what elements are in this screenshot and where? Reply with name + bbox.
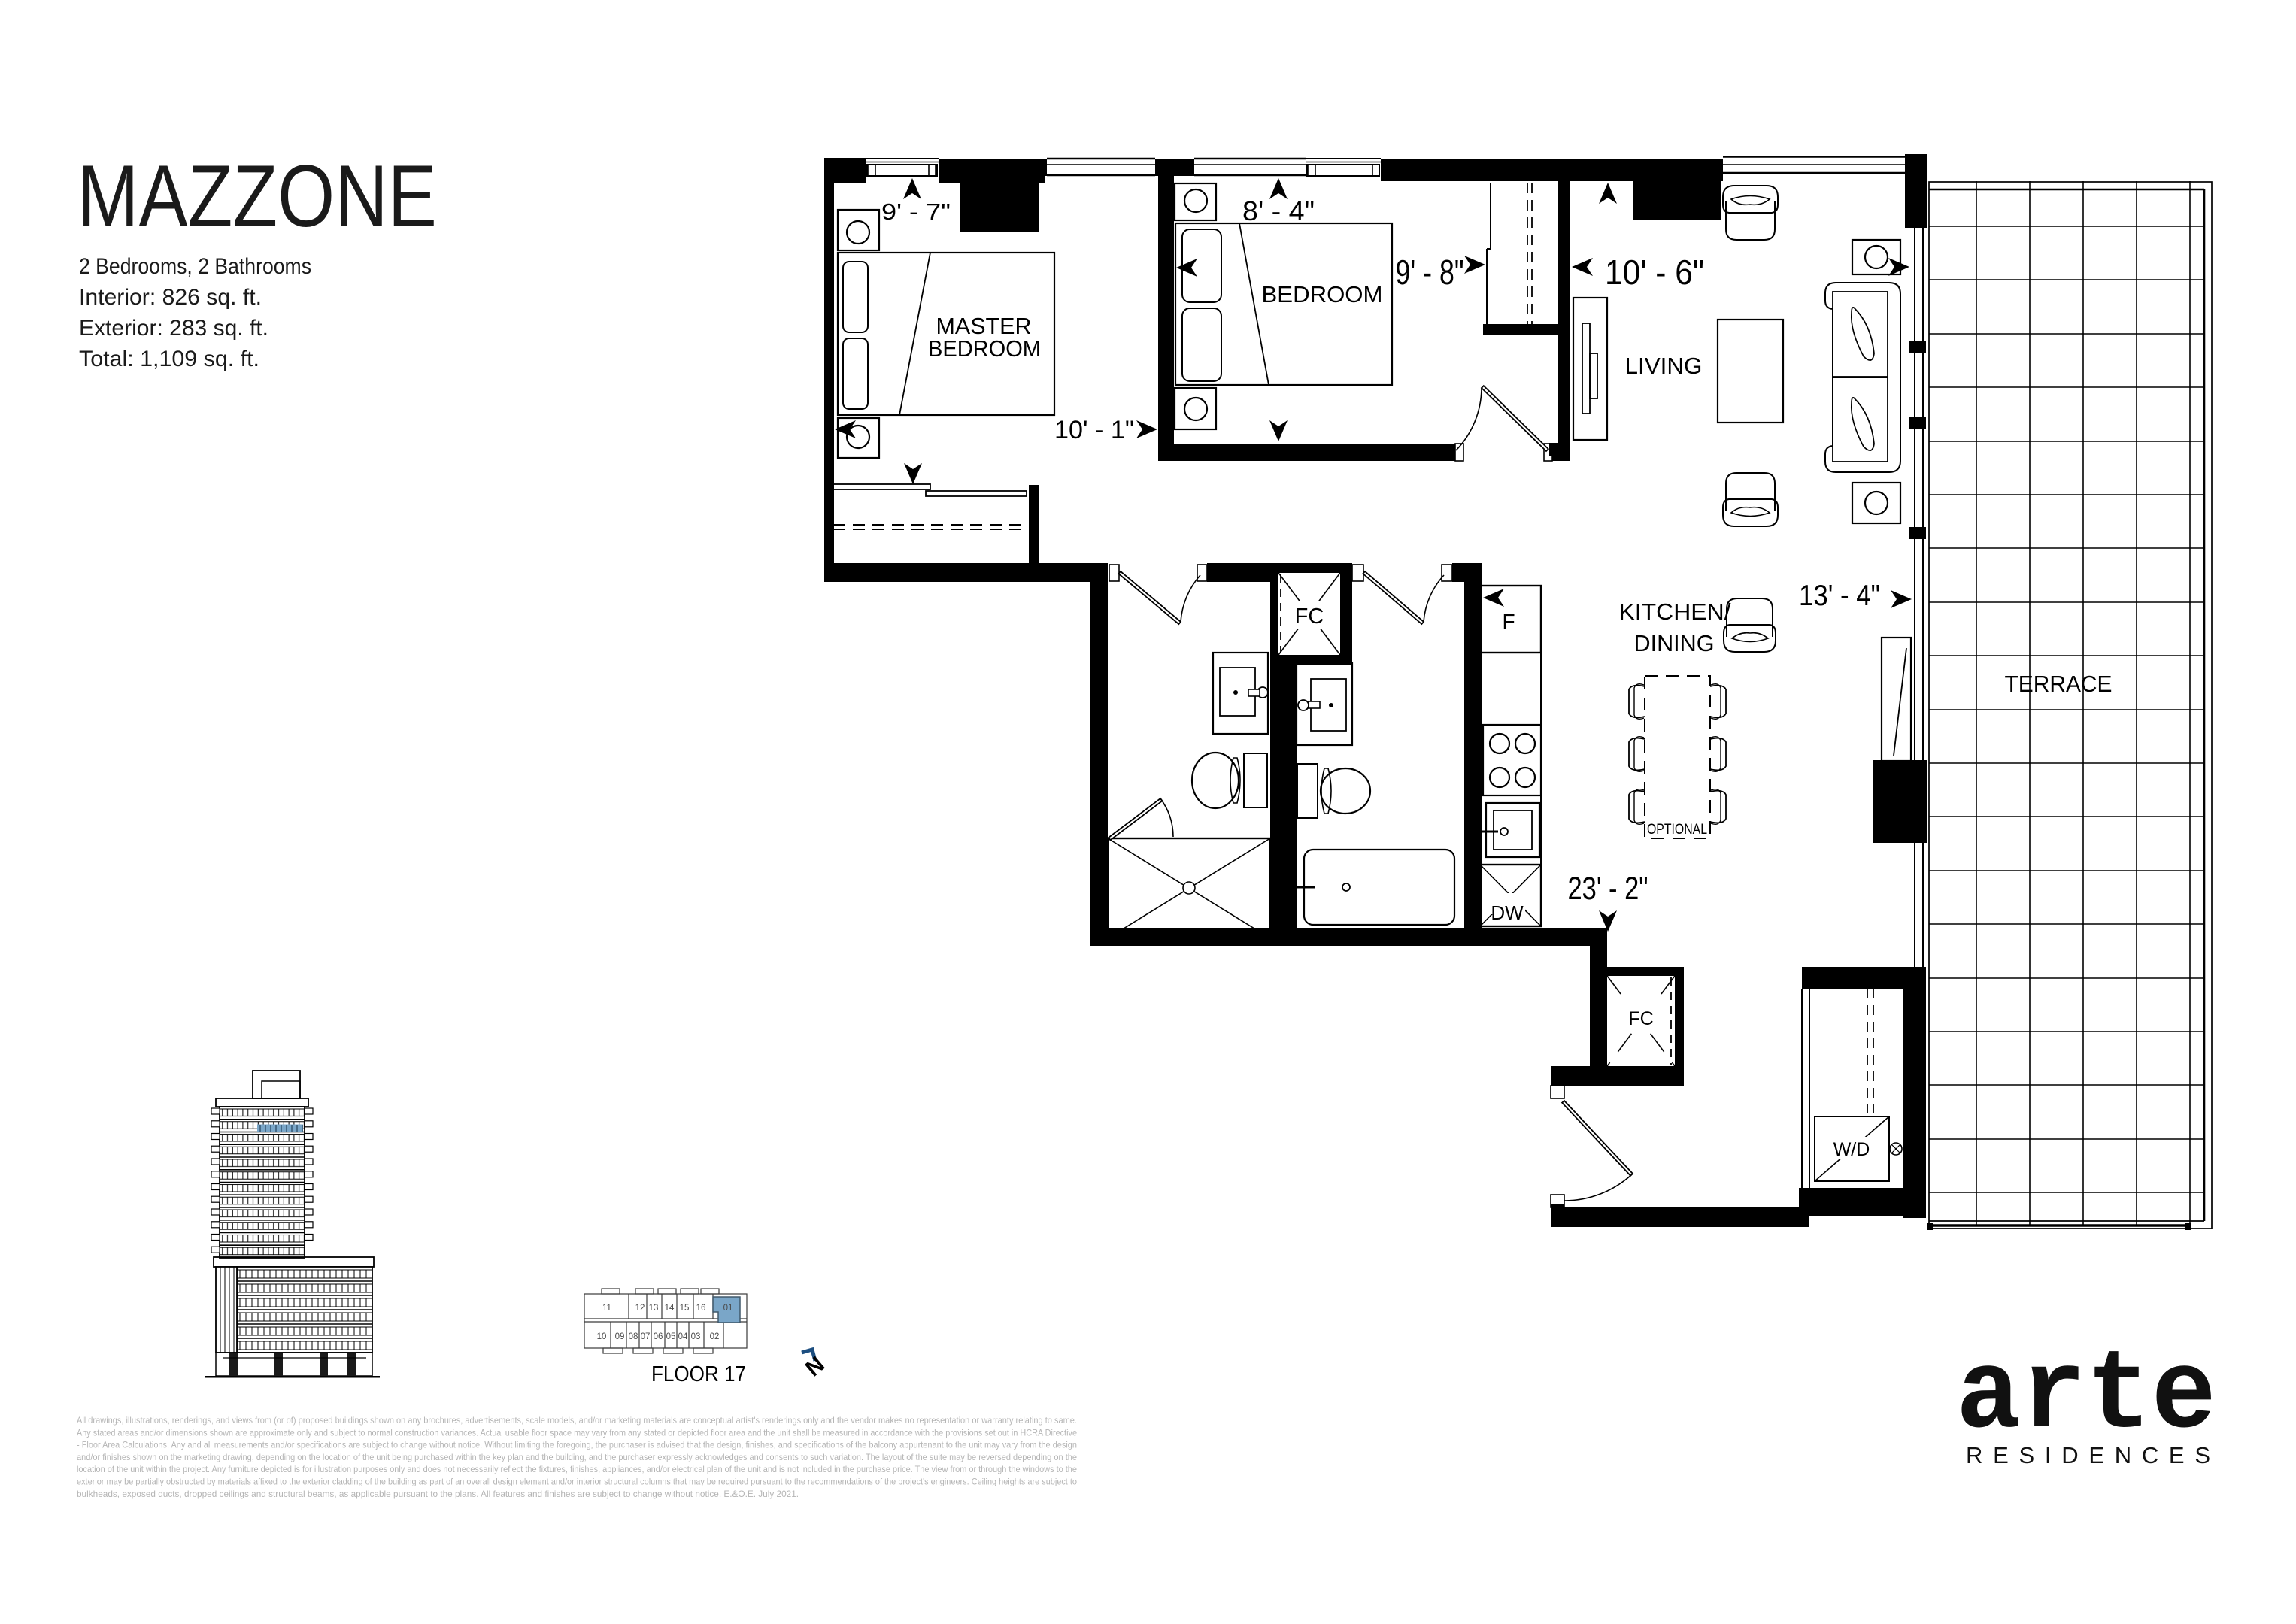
svg-text:07: 07	[641, 1332, 651, 1341]
svg-text:KITCHEN/: KITCHEN/	[1619, 598, 1731, 625]
svg-text:TERRACE: TERRACE	[2005, 671, 2113, 697]
svg-text:FC: FC	[1295, 604, 1324, 629]
svg-text:OPTIONAL: OPTIONAL	[1647, 822, 1707, 838]
svg-text:14: 14	[665, 1304, 675, 1313]
svg-text:2 Bedrooms, 2 Bathrooms: 2 Bedrooms, 2 Bathrooms	[79, 254, 311, 279]
svg-text:03: 03	[691, 1332, 701, 1341]
svg-text:DW: DW	[1491, 901, 1524, 924]
svg-text:06: 06	[654, 1332, 663, 1341]
svg-text:exterior may be partially obst: exterior may be partially obstructed by …	[77, 1477, 1077, 1487]
svg-text:10: 10	[597, 1332, 607, 1341]
svg-text:location of the unit within th: location of the unit within the project.…	[77, 1464, 1077, 1474]
svg-text:FLOOR 17: FLOOR 17	[651, 1362, 746, 1386]
svg-text:13: 13	[649, 1304, 659, 1313]
svg-text:08: 08	[629, 1332, 638, 1341]
svg-text:13' - 4": 13' - 4"	[1799, 580, 1880, 612]
svg-text:Total: 1,109 sq. ft.: Total: 1,109 sq. ft.	[79, 347, 259, 371]
svg-text:DINING: DINING	[1634, 630, 1715, 656]
svg-text:23' - 2": 23' - 2"	[1568, 871, 1648, 907]
svg-text:9' - 7": 9' - 7"	[881, 198, 951, 225]
svg-text:and/or finishes shown on the m: and/or finishes shown on the marketing d…	[77, 1452, 1077, 1462]
svg-text:04: 04	[678, 1332, 688, 1341]
svg-text:05: 05	[666, 1332, 676, 1341]
svg-text:8' - 4": 8' - 4"	[1242, 195, 1315, 226]
svg-text:01: 01	[723, 1304, 733, 1313]
svg-text:BEDROOM: BEDROOM	[1262, 281, 1383, 308]
svg-text:BEDROOM: BEDROOM	[928, 335, 1041, 362]
svg-text:Exterior: 283 sq. ft.: Exterior: 283 sq. ft.	[79, 316, 268, 341]
svg-text:15: 15	[680, 1304, 690, 1313]
svg-text:09: 09	[615, 1332, 625, 1341]
svg-text:F: F	[1502, 610, 1515, 633]
svg-text:9' - 8": 9' - 8"	[1396, 253, 1464, 292]
svg-text:MAZZONE: MAZZONE	[77, 147, 437, 245]
svg-text:10' - 1": 10' - 1"	[1054, 416, 1134, 444]
svg-text:All drawings, illustrations, r: All drawings, illustrations, renderings,…	[77, 1415, 1077, 1426]
svg-text:10' - 6": 10' - 6"	[1605, 253, 1704, 292]
svg-text:bulkheads, exposed ducts, drop: bulkheads, exposed ducts, dropped ceilin…	[77, 1489, 799, 1499]
svg-text:RESIDENCES: RESIDENCES	[1966, 1442, 2210, 1468]
svg-text:11: 11	[602, 1304, 611, 1313]
svg-text:FC: FC	[1628, 1008, 1653, 1029]
svg-text:- Floor Area Calculations. Any: - Floor Area Calculations. Any and all m…	[77, 1440, 1077, 1450]
svg-text:W/D: W/D	[1833, 1139, 1870, 1160]
svg-text:Interior: 826 sq. ft.: Interior: 826 sq. ft.	[79, 285, 262, 310]
svg-text:16: 16	[696, 1304, 706, 1313]
svg-text:02: 02	[710, 1332, 720, 1341]
svg-text:LIVING: LIVING	[1625, 353, 1703, 379]
svg-text:12: 12	[635, 1304, 645, 1313]
svg-text:Any stated areas and/or dimens: Any stated areas and/or dimensions shown…	[77, 1427, 1077, 1438]
